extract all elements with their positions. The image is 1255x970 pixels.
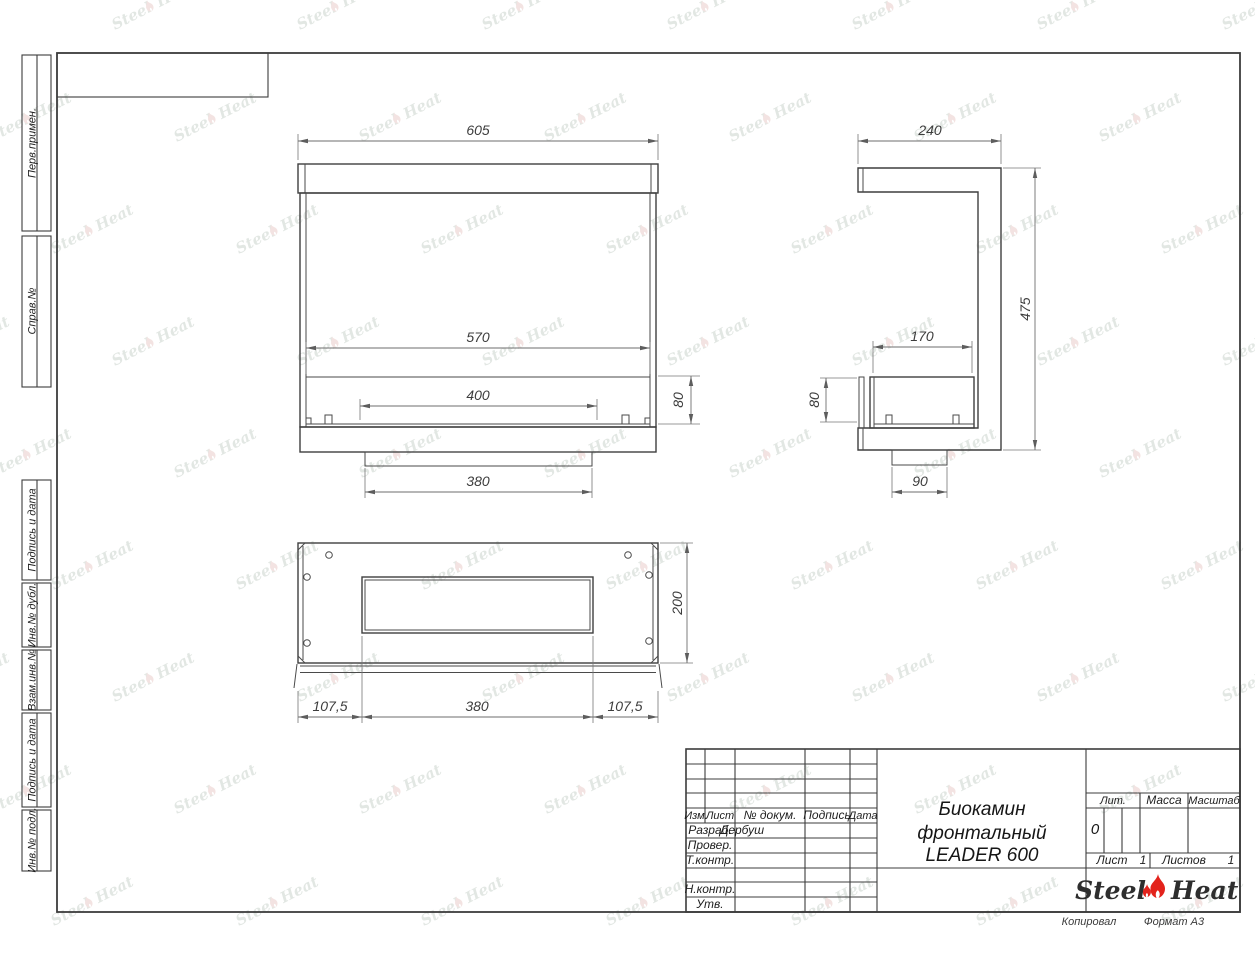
svg-text:Steel: Steel: [171, 782, 217, 817]
dim-bottom-right-offset: 107,5: [607, 698, 642, 714]
watermark: SteelHeat: [418, 536, 507, 593]
tb-header-list: Лист: [705, 810, 734, 822]
title-line-3: LEADER 600: [925, 845, 1038, 866]
watermark: SteelHeat: [356, 424, 445, 481]
watermark: SteelHeat: [1096, 424, 1185, 481]
title-line-1: Биокамин: [938, 799, 1026, 820]
watermark: SteelHeat: [1219, 0, 1255, 34]
svg-text:Heat: Heat: [1139, 88, 1184, 123]
svg-text:Heat: Heat: [152, 648, 197, 683]
tb-header-doc: № докум.: [744, 808, 797, 822]
margin-cell: Подпись и дата: [22, 480, 51, 580]
svg-text:Heat: Heat: [584, 760, 629, 795]
dim-side-burner-depth: 170: [910, 328, 934, 344]
svg-text:Heat: Heat: [831, 200, 876, 235]
svg-text:Steel: Steel: [849, 670, 895, 705]
watermark: SteelHeat: [233, 872, 322, 929]
watermark: SteelHeat: [1034, 648, 1123, 705]
dim-side-overall-height: 475: [1017, 297, 1033, 321]
watermark: SteelHeat: [48, 872, 137, 929]
svg-text:Steel: Steel: [109, 0, 155, 34]
watermark: SteelHeat: [788, 872, 877, 929]
svg-text:Steel: Steel: [1158, 558, 1204, 593]
logo-steel-text: Steel: [1075, 876, 1146, 905]
svg-text:Heat: Heat: [646, 200, 691, 235]
watermark: SteelHeat: [1158, 536, 1247, 593]
svg-text:Steel: Steel: [109, 334, 155, 369]
margin-cell: Инв.№ дубл.: [22, 583, 51, 648]
bottom-view-geometry: [294, 543, 662, 688]
svg-text:Heat: Heat: [954, 88, 999, 123]
svg-text:Steel: Steel: [1034, 0, 1080, 34]
svg-text:Steel: Steel: [664, 0, 710, 34]
svg-text:Steel: Steel: [294, 0, 340, 34]
svg-text:Steel: Steel: [0, 446, 32, 481]
svg-text:Heat: Heat: [152, 0, 197, 11]
watermark: SteelHeat: [171, 424, 260, 481]
svg-text:Heat: Heat: [1139, 760, 1184, 795]
dim-side-overall-depth: 240: [917, 122, 942, 138]
watermark: SteelHeat: [48, 200, 137, 257]
watermark: SteelHeat: [541, 760, 630, 817]
svg-text:Heat: Heat: [0, 312, 12, 347]
svg-text:Heat: Heat: [584, 424, 629, 459]
watermark: SteelHeat: [233, 536, 322, 593]
svg-text:Steel: Steel: [726, 446, 772, 481]
tb-header-date: Дата: [846, 810, 877, 822]
svg-text:Steel: Steel: [541, 110, 587, 145]
svg-text:Heat: Heat: [214, 424, 259, 459]
svg-text:Heat: Heat: [461, 200, 506, 235]
tb-lit-value: 0: [1091, 821, 1100, 838]
dim-side-foot-width: 90: [912, 473, 928, 489]
svg-text:Heat: Heat: [707, 312, 752, 347]
svg-text:Heat: Heat: [461, 872, 506, 907]
svg-text:Heat: Heat: [461, 536, 506, 571]
svg-text:Heat: Heat: [1139, 424, 1184, 459]
svg-text:Heat: Heat: [152, 312, 197, 347]
svg-text:Heat: Heat: [91, 200, 136, 235]
svg-text:Heat: Heat: [892, 0, 937, 11]
svg-text:Heat: Heat: [91, 872, 136, 907]
svg-text:Heat: Heat: [337, 0, 382, 11]
svg-text:Steel: Steel: [1219, 334, 1255, 369]
watermark: SteelHeat: [603, 536, 692, 593]
sheet-frame: [57, 53, 1240, 912]
svg-text:Steel: Steel: [479, 0, 525, 34]
svg-text:Steel: Steel: [356, 110, 402, 145]
dim-front-burner-width: 400: [466, 387, 490, 403]
dim-side-burner-height: 80: [806, 392, 822, 408]
margin-label: Инв.№ подл.: [27, 807, 39, 872]
watermark: SteelHeat: [479, 0, 568, 34]
margin-cell: Взам.инв.№: [22, 649, 51, 711]
watermark: SteelHeat: [0, 424, 74, 481]
svg-text:Steel: Steel: [109, 670, 155, 705]
tb-tcontrol-label: Т.контр.: [686, 853, 734, 867]
side-view: 240 475 170 80 90: [806, 122, 1041, 498]
watermark: SteelHeat: [294, 648, 383, 705]
svg-text:Steel: Steel: [849, 0, 895, 34]
dim-bottom-tray-width: 380: [465, 698, 489, 714]
margin-label: Подпись и дата: [27, 718, 39, 801]
svg-text:Heat: Heat: [337, 312, 382, 347]
watermark: SteelHeat: [0, 312, 12, 369]
watermark: SteelHeat: [418, 872, 507, 929]
watermark-layer: SteelHeatSteelHeatSteelHeatSteelHeatStee…: [0, 0, 1255, 930]
watermark: SteelHeat: [109, 312, 198, 369]
watermark: SteelHeat: [356, 88, 445, 145]
margin-label: Перв.примен.: [27, 108, 39, 178]
svg-text:Steel: Steel: [603, 558, 649, 593]
front-view-dimensions: 605 570 400 80 380: [298, 122, 700, 498]
svg-text:Heat: Heat: [1077, 648, 1122, 683]
tb-sheet-value: 1: [1140, 853, 1147, 867]
format-label: Формат А3: [1144, 916, 1205, 928]
svg-text:Heat: Heat: [276, 200, 321, 235]
svg-text:Heat: Heat: [91, 536, 136, 571]
svg-text:Heat: Heat: [954, 760, 999, 795]
svg-text:Heat: Heat: [1077, 312, 1122, 347]
svg-text:Steel: Steel: [664, 670, 710, 705]
watermark: SteelHeat: [541, 424, 630, 481]
tb-checked-label: Провер.: [688, 838, 733, 852]
watermark: SteelHeat: [603, 200, 692, 257]
svg-text:Heat: Heat: [831, 536, 876, 571]
tb-mass-label: Масса: [1146, 793, 1182, 807]
watermark: SteelHeat: [479, 648, 568, 705]
watermark: SteelHeat: [294, 0, 383, 34]
side-view-dimensions: 240 475 170 80 90: [806, 122, 1041, 498]
bottom-view: 200 107,5 380 107,5: [294, 543, 693, 723]
title-line-2: фронтальный: [917, 823, 1047, 844]
watermark: SteelHeat: [1096, 88, 1185, 145]
dim-front-overall-width: 605: [466, 122, 490, 138]
svg-text:Heat: Heat: [1016, 536, 1061, 571]
reference-designation-box: [57, 53, 268, 97]
watermark: SteelHeat: [356, 760, 445, 817]
watermark: SteelHeat: [479, 312, 568, 369]
front-view-geometry: [298, 164, 658, 466]
tb-scale-label: Масштаб: [1188, 795, 1240, 807]
svg-text:Heat: Heat: [399, 424, 444, 459]
watermark: SteelHeat: [664, 648, 753, 705]
svg-text:Steel: Steel: [233, 222, 279, 257]
svg-text:Heat: Heat: [954, 424, 999, 459]
watermark: SteelHeat: [664, 0, 753, 34]
svg-text:Heat: Heat: [276, 872, 321, 907]
dim-front-opening-width: 570: [466, 329, 490, 345]
svg-text:Steel: Steel: [1096, 110, 1142, 145]
watermark: SteelHeat: [849, 648, 938, 705]
svg-text:Steel: Steel: [418, 558, 464, 593]
watermark: SteelHeat: [788, 536, 877, 593]
margin-label: Подпись и дата: [27, 488, 39, 571]
svg-text:Heat: Heat: [399, 88, 444, 123]
svg-text:Heat: Heat: [584, 88, 629, 123]
dim-bottom-left-offset: 107,5: [312, 698, 347, 714]
tb-approved-label: Утв.: [695, 897, 723, 911]
watermark: SteelHeat: [109, 648, 198, 705]
svg-text:Steel: Steel: [48, 558, 94, 593]
svg-text:Heat: Heat: [1077, 0, 1122, 11]
svg-text:Steel: Steel: [171, 446, 217, 481]
margin-cell: Перв.примен.: [22, 55, 51, 231]
svg-text:Steel: Steel: [849, 334, 895, 369]
watermark: SteelHeat: [0, 0, 12, 34]
dim-front-burner-height: 80: [670, 392, 686, 408]
margin-cell: Инв.№ подл.: [22, 807, 51, 872]
svg-text:Steel: Steel: [664, 334, 710, 369]
svg-text:Heat: Heat: [276, 536, 321, 571]
svg-text:Heat: Heat: [522, 312, 567, 347]
margin-label: Справ.№: [27, 287, 39, 334]
watermark: SteelHeat: [973, 200, 1062, 257]
watermark: SteelHeat: [541, 88, 630, 145]
title-block: Изм. Лист № докум. Подпись Дата Разраб. …: [684, 749, 1240, 912]
svg-text:Steel: Steel: [418, 222, 464, 257]
margin-label: Инв.№ дубл.: [27, 583, 39, 648]
svg-text:Heat: Heat: [769, 88, 814, 123]
svg-text:Steel: Steel: [541, 782, 587, 817]
svg-text:Steel: Steel: [788, 558, 834, 593]
watermark: SteelHeat: [1158, 200, 1247, 257]
watermark: SteelHeat: [726, 88, 815, 145]
svg-text:Steel: Steel: [356, 782, 402, 817]
svg-text:Steel: Steel: [1034, 670, 1080, 705]
left-margin-stamps: Перв.примен. Справ.№ Подпись и дата Инв.…: [22, 55, 51, 873]
tb-header-sign: Подпись: [803, 808, 851, 822]
watermark: SteelHeat: [1219, 648, 1255, 705]
margin-cell: Подпись и дата: [22, 713, 51, 807]
watermark: SteelHeat: [849, 0, 938, 34]
tb-lit-label: Лит.: [1099, 795, 1126, 807]
svg-text:Steel: Steel: [48, 222, 94, 257]
watermark: SteelHeat: [973, 536, 1062, 593]
dim-bottom-overall-depth: 200: [669, 591, 685, 616]
tb-developed-value: Дербуш: [718, 823, 764, 837]
logo-heat-text: Heat: [1170, 876, 1239, 905]
margin-label: Взам.инв.№: [27, 649, 39, 711]
tb-ncontrol-label: Н.контр.: [685, 882, 736, 896]
watermark: SteelHeat: [1034, 312, 1123, 369]
svg-text:Steel: Steel: [1158, 222, 1204, 257]
svg-text:Heat: Heat: [892, 648, 937, 683]
svg-text:Steel: Steel: [973, 222, 1019, 257]
svg-text:Heat: Heat: [707, 648, 752, 683]
svg-text:Steel: Steel: [1219, 0, 1255, 34]
watermark: SteelHeat: [109, 0, 198, 34]
watermark: SteelHeat: [294, 312, 383, 369]
svg-text:Heat: Heat: [1016, 200, 1061, 235]
front-view: 605 570 400 80 380: [298, 122, 700, 498]
document-title: Биокамин фронтальный LEADER 600: [917, 799, 1047, 866]
svg-text:Heat: Heat: [0, 648, 12, 683]
svg-text:Steel: Steel: [1096, 446, 1142, 481]
svg-text:Steel: Steel: [1219, 670, 1255, 705]
svg-text:Steel: Steel: [603, 222, 649, 257]
svg-text:Heat: Heat: [0, 0, 12, 11]
tb-sheets-value: 1: [1228, 853, 1235, 867]
svg-text:Steel: Steel: [1034, 334, 1080, 369]
steel-heat-logo: Steel Heat: [1075, 874, 1239, 905]
watermark: SteelHeat: [1219, 312, 1255, 369]
watermark: SteelHeat: [788, 200, 877, 257]
svg-text:Heat: Heat: [399, 760, 444, 795]
watermark: SteelHeat: [973, 872, 1062, 929]
svg-text:Heat: Heat: [29, 424, 74, 459]
watermark: SteelHeat: [0, 648, 12, 705]
svg-text:Heat: Heat: [214, 760, 259, 795]
tb-sheet-label: Лист: [1096, 853, 1128, 867]
svg-text:Heat: Heat: [214, 88, 259, 123]
watermark: SteelHeat: [664, 312, 753, 369]
drawing-canvas: SteelHeatSteelHeatSteelHeatSteelHeatStee…: [0, 0, 1255, 970]
watermark: SteelHeat: [48, 536, 137, 593]
svg-text:Steel: Steel: [726, 110, 772, 145]
svg-text:Heat: Heat: [769, 424, 814, 459]
svg-text:Heat: Heat: [522, 0, 567, 11]
watermark: SteelHeat: [726, 424, 815, 481]
dim-front-tray-width: 380: [466, 473, 490, 489]
margin-cell: Справ.№: [22, 236, 51, 387]
svg-text:Steel: Steel: [788, 222, 834, 257]
svg-text:Heat: Heat: [707, 0, 752, 11]
svg-text:Steel: Steel: [171, 110, 217, 145]
svg-text:Heat: Heat: [831, 872, 876, 907]
watermark: SteelHeat: [603, 872, 692, 929]
svg-text:Heat: Heat: [769, 760, 814, 795]
watermark: SteelHeat: [233, 200, 322, 257]
copied-label: Копировал: [1062, 916, 1117, 928]
watermark: SteelHeat: [418, 200, 507, 257]
side-view-geometry: [858, 168, 1001, 465]
watermark: SteelHeat: [1034, 0, 1123, 34]
tb-sheets-label: Листов: [1161, 853, 1206, 867]
logo-flame-icon: [1151, 874, 1166, 898]
svg-text:Heat: Heat: [1016, 872, 1061, 907]
watermark: SteelHeat: [171, 760, 260, 817]
svg-text:Steel: Steel: [973, 558, 1019, 593]
svg-text:Steel: Steel: [233, 558, 279, 593]
tb-header-izm: Изм.: [684, 810, 707, 822]
